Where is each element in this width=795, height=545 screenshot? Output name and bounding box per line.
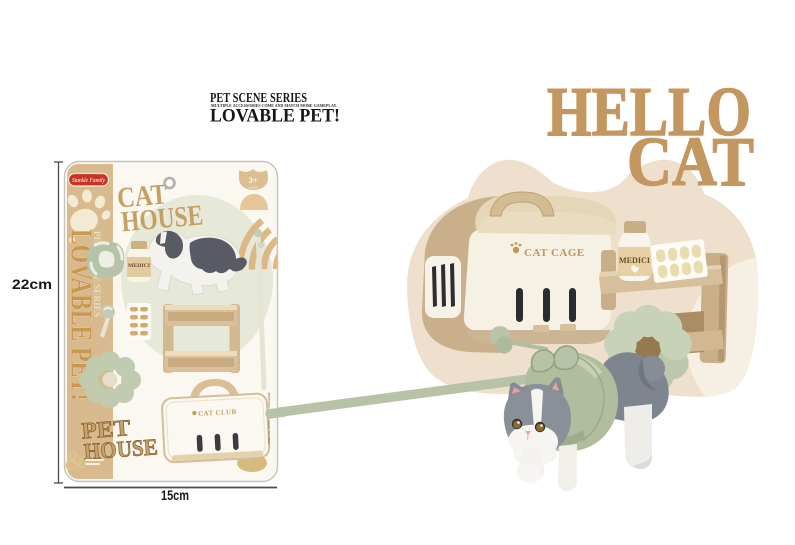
svg-text:4893825NO.5081-25 MADE IN CHIN: 4893825NO.5081-25 MADE IN CHINA xyxy=(267,392,271,445)
svg-text:MEDICI: MEDICI xyxy=(128,263,150,269)
svg-text:22cm: 22cm xyxy=(12,277,52,292)
svg-text:CAT: CAT xyxy=(627,124,754,201)
svg-text:LOVABLE PET!: LOVABLE PET! xyxy=(210,106,340,127)
svg-text:15cm: 15cm xyxy=(161,488,189,503)
svg-text:AGES: AGES xyxy=(248,186,257,190)
svg-text:MEDICI: MEDICI xyxy=(619,256,650,265)
svg-text:CAT CAGE: CAT CAGE xyxy=(524,247,585,259)
svg-text:3+: 3+ xyxy=(248,175,257,185)
svg-text:Stankle Family: Stankle Family xyxy=(72,177,105,184)
